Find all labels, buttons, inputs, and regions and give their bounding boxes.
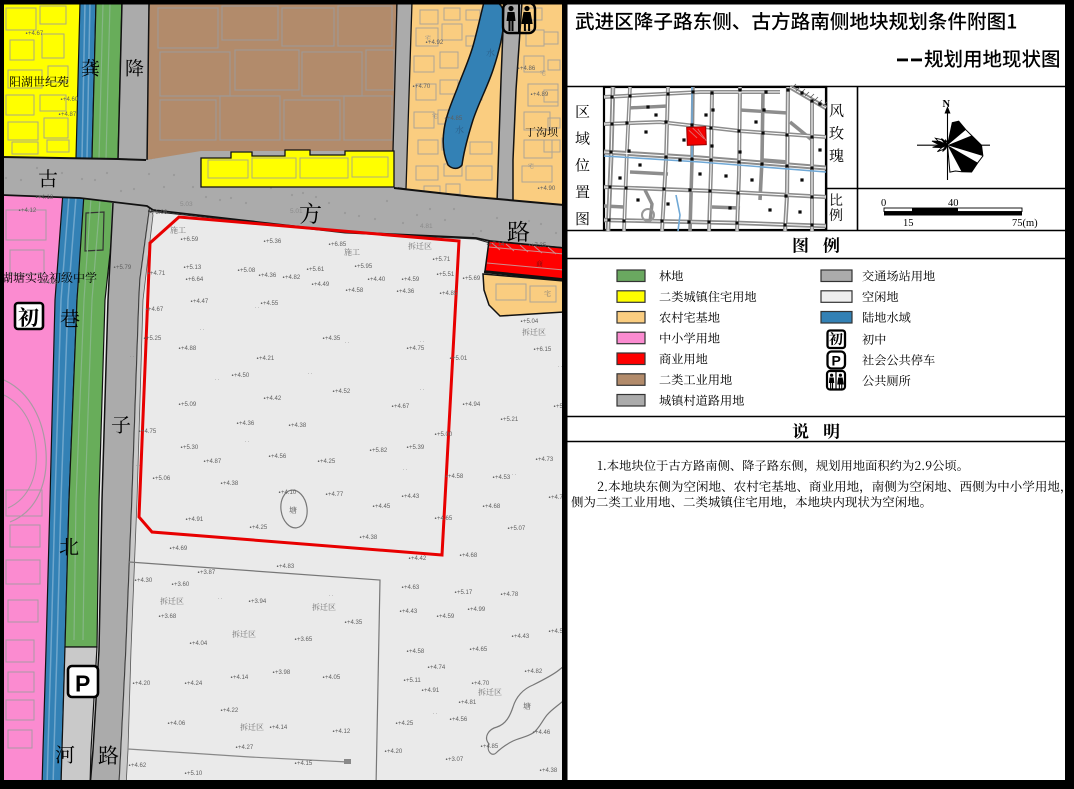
svg-text:+4.59: +4.59 xyxy=(404,277,420,283)
svg-text:+4.86: +4.86 xyxy=(520,66,536,72)
svg-text:. .: . . xyxy=(512,471,516,477)
svg-text:+4.43: +4.43 xyxy=(514,634,530,640)
svg-text:+5.17: +5.17 xyxy=(457,590,473,596)
svg-text:+5.25: +5.25 xyxy=(146,336,162,342)
svg-text:. .: . . xyxy=(200,326,204,332)
svg-text:+5.51: +5.51 xyxy=(439,272,455,278)
svg-text:+5.61: +5.61 xyxy=(309,267,325,273)
svg-text:+4.70: +4.70 xyxy=(415,84,431,90)
svg-text:. .: . . xyxy=(218,595,222,601)
svg-text:+4.36: +4.36 xyxy=(239,421,255,427)
svg-text:+4.49: +4.49 xyxy=(314,282,330,288)
svg-text:. .: . . xyxy=(329,592,333,598)
svg-text:+4.65: +4.65 xyxy=(437,516,453,522)
svg-text:+6.64: +6.64 xyxy=(188,277,204,283)
svg-text:+4.04: +4.04 xyxy=(192,641,208,647)
svg-text:+3.65: +3.65 xyxy=(297,637,313,643)
svg-text:4.81: 4.81 xyxy=(420,223,433,230)
svg-text:+4.35: +4.35 xyxy=(325,336,341,342)
svg-text:. .: . . xyxy=(403,466,407,472)
svg-text:+4.78: +4.78 xyxy=(503,592,519,598)
svg-text:+4.92: +4.92 xyxy=(428,40,444,46)
svg-text:+4.28: +4.28 xyxy=(43,280,59,286)
svg-text:+5.00: +5.00 xyxy=(437,432,453,438)
svg-text:+4.46: +4.46 xyxy=(535,730,551,736)
svg-text:+4.87: +4.87 xyxy=(206,459,222,465)
svg-text:+4.58: +4.58 xyxy=(348,288,364,294)
svg-text:+4.36: +4.36 xyxy=(399,289,415,295)
svg-text:+4.73: +4.73 xyxy=(538,457,554,463)
svg-text:+4.38: +4.38 xyxy=(291,423,307,429)
svg-text:+4.69: +4.69 xyxy=(172,546,188,552)
svg-text:+3.07: +3.07 xyxy=(448,757,464,763)
svg-text:+4.24: +4.24 xyxy=(187,681,203,687)
svg-text:+4.85: +4.85 xyxy=(447,116,463,122)
svg-text:+4.38: +4.38 xyxy=(542,768,558,774)
svg-text:+4.94: +4.94 xyxy=(465,402,481,408)
svg-text:+5.39: +5.39 xyxy=(409,445,425,451)
svg-text:. .: . . xyxy=(345,339,349,345)
svg-text:+4.50: +4.50 xyxy=(234,373,250,379)
svg-text:+3.98: +3.98 xyxy=(275,670,291,676)
svg-text:+4.63: +4.63 xyxy=(404,585,420,591)
svg-text:+4.36: +4.36 xyxy=(261,273,277,279)
svg-text:+4.81: +4.81 xyxy=(461,700,477,706)
svg-text:+4.74: +4.74 xyxy=(430,665,446,671)
svg-text:+4.06: +4.06 xyxy=(170,721,186,727)
svg-text:+4.20: +4.20 xyxy=(135,681,151,687)
svg-text:+3.68: +3.68 xyxy=(161,614,177,620)
svg-text:+4.42: +4.42 xyxy=(266,396,282,402)
svg-text:+4.52: +4.52 xyxy=(335,389,351,395)
svg-text:. .: . . xyxy=(420,338,424,344)
svg-text:+4.25: +4.25 xyxy=(398,721,414,727)
svg-text:. .: . . xyxy=(420,386,424,392)
svg-text:+5.08: +5.08 xyxy=(240,268,256,274)
svg-text:+4.85: +4.85 xyxy=(442,291,458,297)
svg-text:+4.38: +4.38 xyxy=(223,481,239,487)
svg-text:+4.18: +4.18 xyxy=(38,195,54,201)
svg-text:+4.77: +4.77 xyxy=(328,492,344,498)
svg-text:+4.85: +4.85 xyxy=(483,744,499,750)
svg-text:0: 0 xyxy=(881,198,886,209)
svg-text:+4.20: +4.20 xyxy=(387,749,403,755)
svg-text:+4.25: +4.25 xyxy=(320,459,336,465)
svg-text:+4.68: +4.68 xyxy=(485,504,501,510)
svg-text:+4.67: +4.67 xyxy=(394,404,410,410)
svg-text:+4.60: +4.60 xyxy=(63,97,79,103)
svg-text:+5.79: +5.79 xyxy=(116,265,132,271)
svg-text:. .: . . xyxy=(558,363,562,369)
svg-text:+4.42: +4.42 xyxy=(411,556,427,562)
svg-text:+4.14: +4.14 xyxy=(233,675,249,681)
svg-text:P: P xyxy=(832,353,841,369)
svg-text:+4.62: +4.62 xyxy=(131,763,147,769)
svg-text:+4.56: +4.56 xyxy=(452,717,468,723)
svg-text:+4.12: +4.12 xyxy=(21,208,37,214)
svg-text:+5.71: +5.71 xyxy=(435,257,451,263)
svg-text:+7.14: +7.14 xyxy=(489,242,505,248)
svg-text:+4.91: +4.91 xyxy=(188,517,204,523)
svg-text:5.01: 5.01 xyxy=(290,208,303,215)
svg-text:+5.09: +5.09 xyxy=(181,402,197,408)
svg-text:+4.05: +4.05 xyxy=(325,675,341,681)
svg-text:. .: . . xyxy=(255,304,259,310)
svg-text:+4.35: +4.35 xyxy=(347,620,363,626)
svg-text:+5.01: +5.01 xyxy=(452,356,468,362)
svg-text:+5.13: +5.13 xyxy=(186,265,202,271)
svg-text:+3.60: +3.60 xyxy=(174,582,190,588)
svg-text:+4.58: +4.58 xyxy=(448,474,464,480)
svg-text:+5.30: +5.30 xyxy=(183,445,199,451)
svg-text:+5.95: +5.95 xyxy=(357,264,373,270)
svg-text:+5.07: +5.07 xyxy=(510,526,526,532)
svg-text:+4.56: +4.56 xyxy=(271,454,287,460)
svg-text:+4.70: +4.70 xyxy=(474,681,490,687)
svg-text:+4.43: +4.43 xyxy=(402,609,418,615)
svg-text:15: 15 xyxy=(903,218,914,229)
svg-text:+4.55: +4.55 xyxy=(263,301,279,307)
svg-text:+6.15: +6.15 xyxy=(536,347,552,353)
svg-text:+5.82: +5.82 xyxy=(372,448,388,454)
svg-text:75(m): 75(m) xyxy=(1012,218,1038,229)
svg-text:+4.45: +4.45 xyxy=(375,504,391,510)
svg-text:+4.67: +4.67 xyxy=(28,31,44,37)
svg-text:P: P xyxy=(75,671,90,697)
svg-text:. .: . . xyxy=(433,710,437,716)
svg-text:+5.06: +5.06 xyxy=(155,476,171,482)
svg-text:+6.59: +6.59 xyxy=(183,237,199,243)
svg-text:+4.90: +4.90 xyxy=(540,186,556,192)
svg-text:+4.10: +4.10 xyxy=(281,490,297,496)
svg-text:. .: . . xyxy=(130,353,134,359)
svg-text:+4.83: +4.83 xyxy=(279,564,295,570)
svg-text:+5.11: +5.11 xyxy=(406,678,421,684)
svg-text:+4.27: +4.27 xyxy=(238,745,254,751)
svg-text:+4.53: +4.53 xyxy=(495,475,511,481)
svg-text:+4.88: +4.88 xyxy=(181,346,197,352)
svg-text:+4.91: +4.91 xyxy=(424,688,440,694)
svg-text:+4.59: +4.59 xyxy=(439,614,455,620)
svg-text:+4.68: +4.68 xyxy=(462,553,478,559)
svg-text:+5.10: +5.10 xyxy=(187,771,203,777)
svg-text:+4.58: +4.58 xyxy=(409,649,425,655)
svg-text:+6.85: +6.85 xyxy=(331,242,347,248)
svg-text:. .: . . xyxy=(215,376,219,382)
svg-text:+4.25: +4.25 xyxy=(252,525,268,531)
svg-text:+5.04: +5.04 xyxy=(523,319,539,325)
svg-text:+5.21: +5.21 xyxy=(503,417,519,423)
svg-text:+7.35: +7.35 xyxy=(531,243,547,249)
svg-text:+4.12: +4.12 xyxy=(335,729,351,735)
svg-text:+4.43: +4.43 xyxy=(404,494,420,500)
svg-text:+4.21: +4.21 xyxy=(259,356,275,362)
svg-text:. .: . . xyxy=(136,462,140,468)
svg-text:+5.06: +5.06 xyxy=(152,210,168,216)
svg-text:+4.75: +4.75 xyxy=(409,346,425,352)
svg-text:+4.47: +4.47 xyxy=(193,299,209,305)
svg-text:+4.22: +4.22 xyxy=(223,708,239,714)
svg-text:. .: . . xyxy=(245,438,249,444)
svg-text:+4.67: +4.67 xyxy=(148,307,164,313)
svg-text:+4.65: +4.65 xyxy=(472,647,488,653)
svg-text:+4.14: +4.14 xyxy=(272,725,288,731)
svg-text:+4.15: +4.15 xyxy=(297,761,313,767)
svg-text:+3.87: +3.87 xyxy=(200,570,216,576)
svg-text:+4.89: +4.89 xyxy=(533,92,549,98)
svg-text:+4.30: +4.30 xyxy=(137,578,153,584)
svg-text:+4.99: +4.99 xyxy=(470,607,486,613)
svg-text:+5.36: +5.36 xyxy=(266,239,282,245)
svg-text:+4.38: +4.38 xyxy=(362,535,378,541)
svg-text:+4.82: +4.82 xyxy=(285,275,301,281)
svg-text:+3.94: +3.94 xyxy=(251,599,267,605)
svg-text:+4.87: +4.87 xyxy=(61,112,77,118)
svg-text:N: N xyxy=(943,99,951,110)
svg-text:40: 40 xyxy=(948,198,959,209)
svg-text:+4.75: +4.75 xyxy=(141,429,157,435)
svg-text:+5.69: +5.69 xyxy=(465,276,481,282)
svg-text:+4.71: +4.71 xyxy=(150,271,166,277)
svg-text:+4.40: +4.40 xyxy=(370,277,386,283)
svg-text:+4.82: +4.82 xyxy=(527,669,543,675)
svg-text:5.03: 5.03 xyxy=(180,201,193,208)
svg-text:. .: . . xyxy=(308,370,312,376)
